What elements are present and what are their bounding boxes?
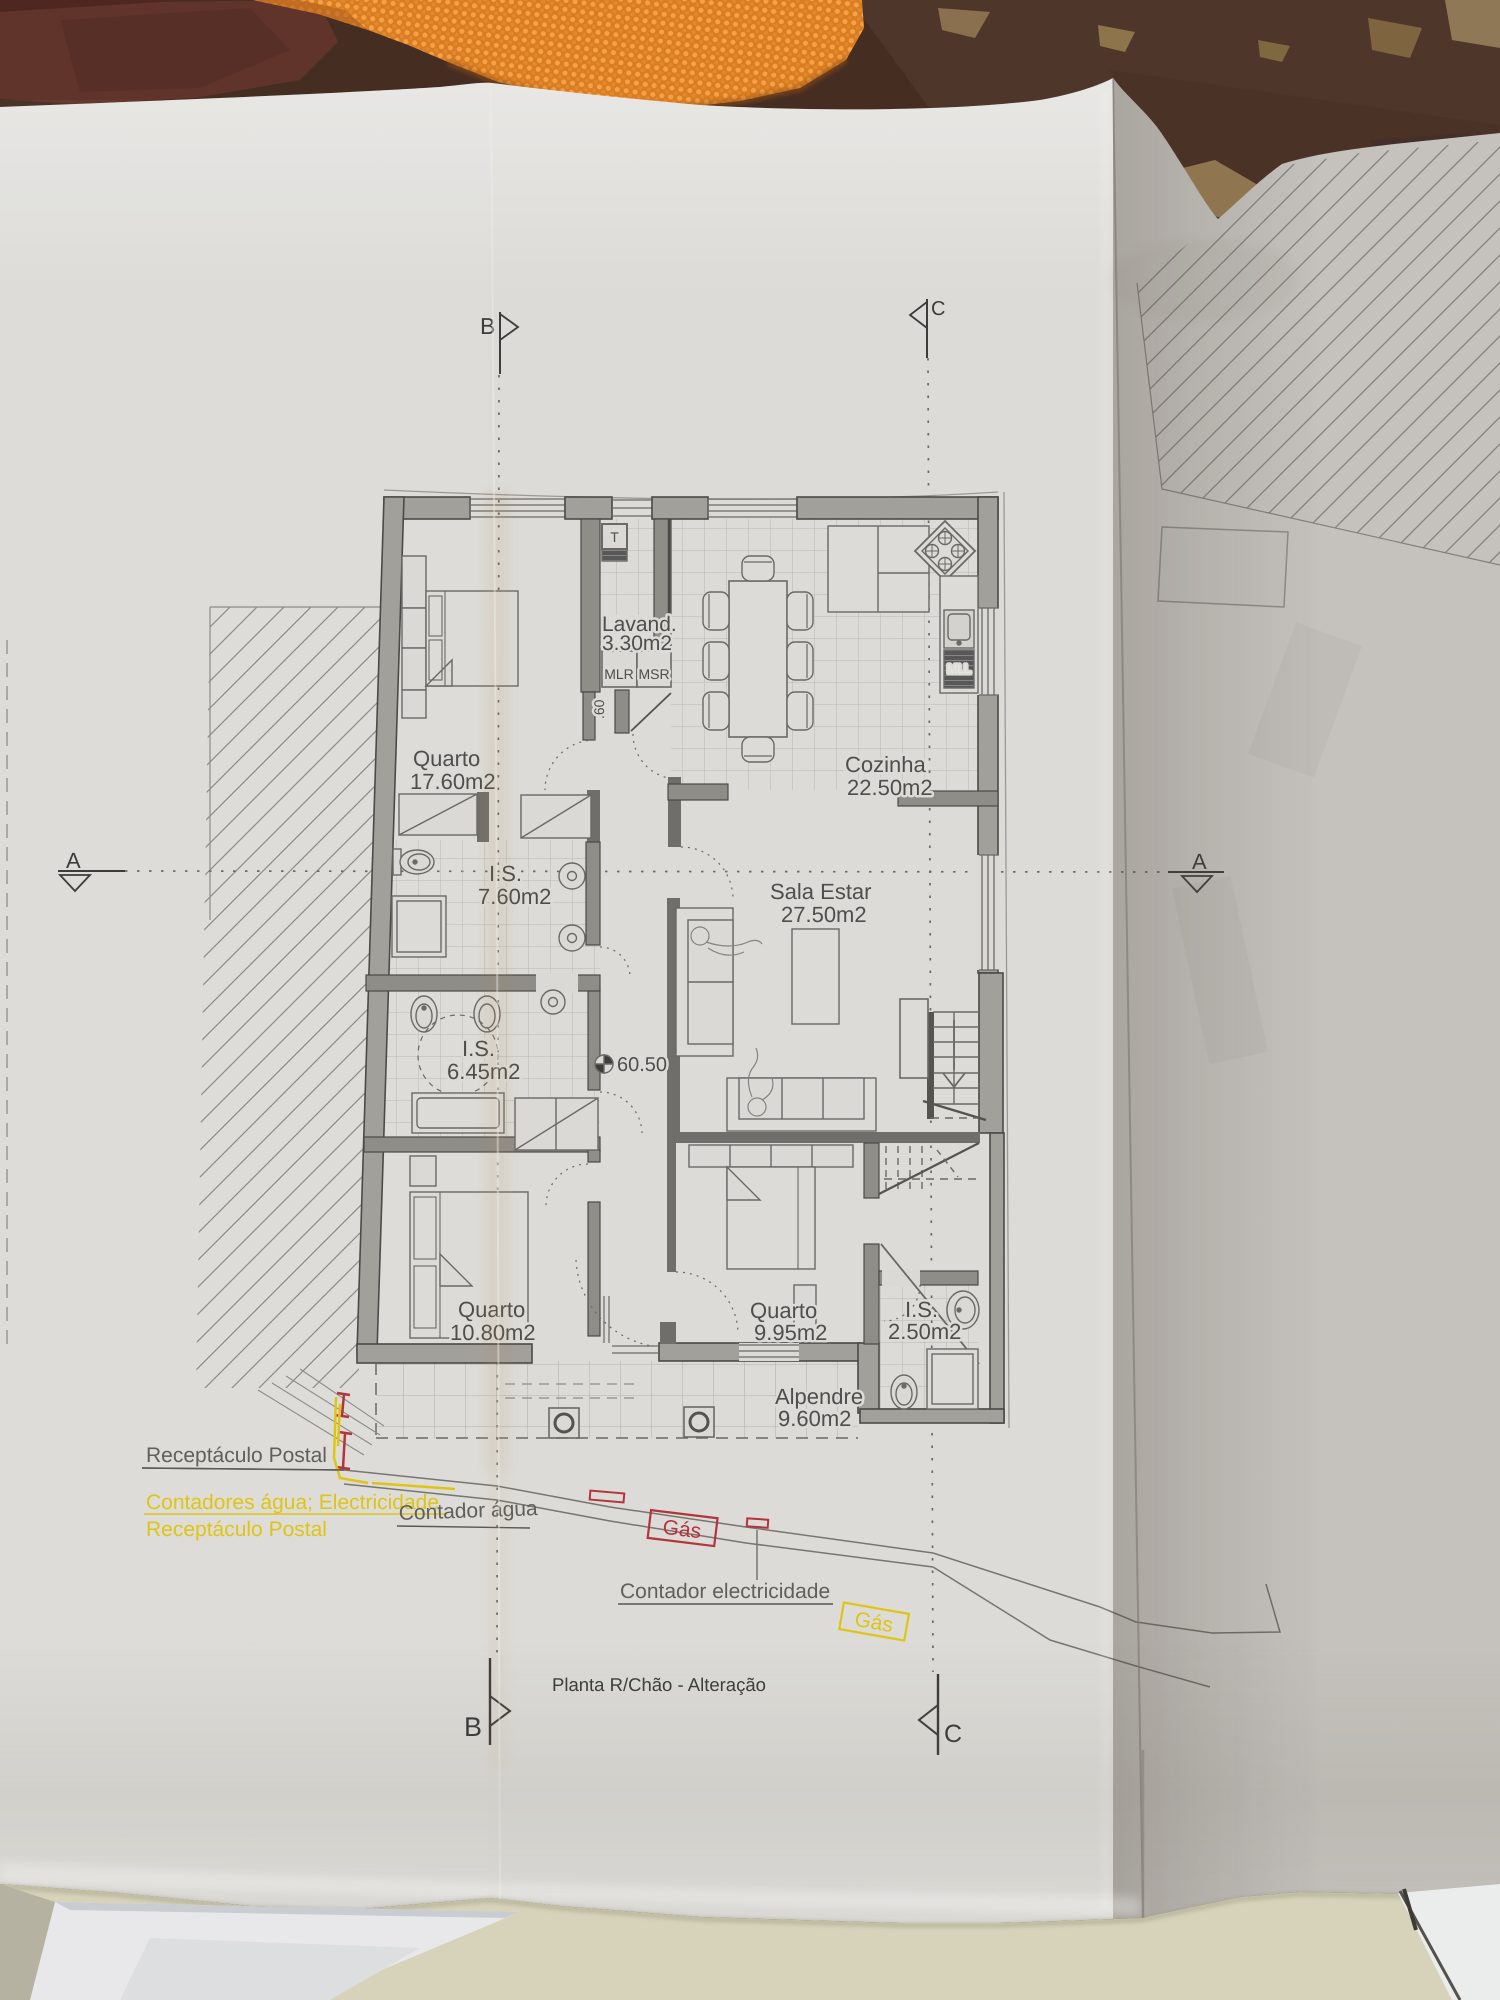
svg-text:.60: .60 bbox=[591, 699, 607, 719]
svg-text:Cozinha: Cozinha bbox=[845, 752, 926, 777]
svg-text:Contadores água; Electricidade: Contadores água; Electricidade bbox=[146, 1491, 439, 1514]
svg-text:T: T bbox=[610, 529, 619, 545]
svg-text:C: C bbox=[931, 298, 945, 320]
svg-text:Contador electricidade: Contador electricidade bbox=[620, 1580, 830, 1603]
svg-text:Sala Estar: Sala Estar bbox=[770, 879, 872, 904]
svg-text:Quarto: Quarto bbox=[413, 746, 480, 771]
svg-text:27.50m2: 27.50m2 bbox=[781, 902, 867, 927]
svg-text:22.50m2: 22.50m2 bbox=[847, 775, 933, 800]
svg-text:MLR: MLR bbox=[604, 666, 634, 682]
svg-text:Contador água: Contador água bbox=[398, 1497, 538, 1525]
svg-text:A: A bbox=[66, 848, 81, 873]
svg-text:9.95m2: 9.95m2 bbox=[754, 1320, 827, 1345]
svg-text:17.60m2: 17.60m2 bbox=[410, 769, 496, 794]
svg-text:60.50: 60.50 bbox=[617, 1054, 667, 1076]
svg-text:MLL: MLL bbox=[947, 662, 971, 676]
svg-text:2.50m2: 2.50m2 bbox=[888, 1319, 961, 1344]
svg-text:Receptáculo Postal: Receptáculo Postal bbox=[146, 1444, 327, 1467]
svg-text:Gás: Gás bbox=[661, 1516, 702, 1544]
svg-text:3.30m2: 3.30m2 bbox=[602, 632, 672, 655]
svg-text:9.60m2: 9.60m2 bbox=[778, 1406, 851, 1431]
svg-text:MSR: MSR bbox=[638, 666, 669, 682]
svg-text:Receptáculo Postal: Receptáculo Postal bbox=[146, 1518, 327, 1541]
